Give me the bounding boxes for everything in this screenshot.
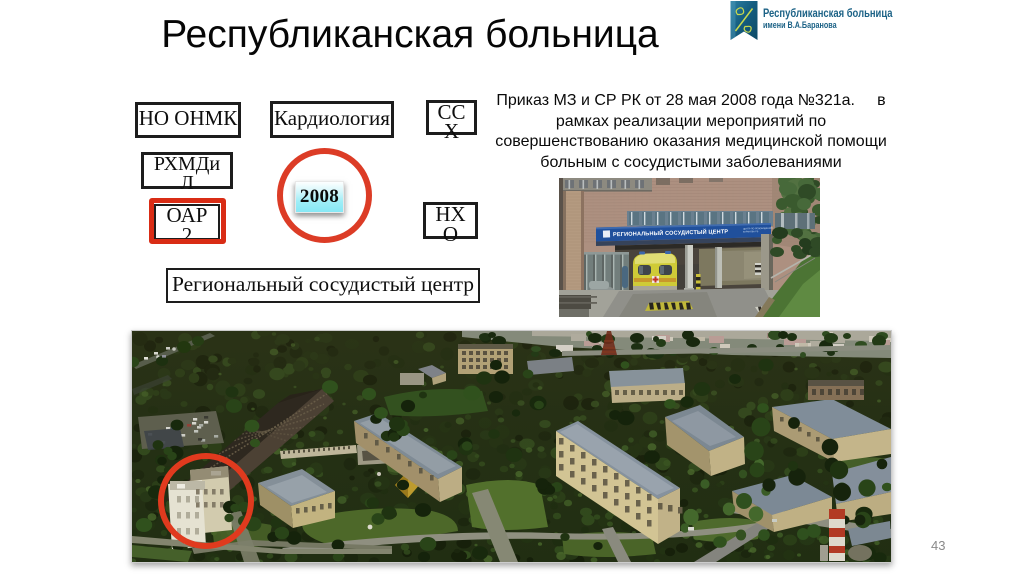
svg-text:БАРАНОВА РБ: БАРАНОВА РБ	[743, 230, 759, 233]
